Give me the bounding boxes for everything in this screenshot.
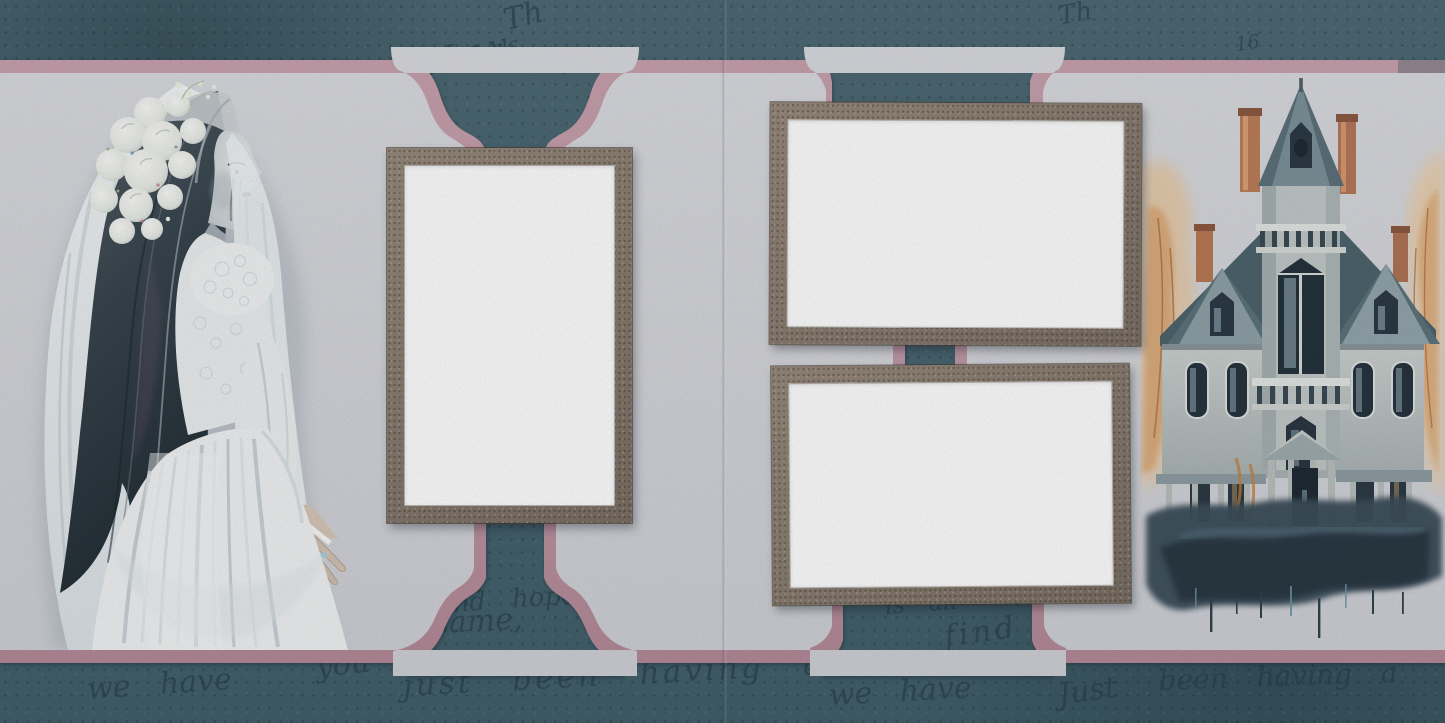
photo-placeholder-left[interactable] bbox=[404, 165, 615, 506]
decorative-script: we have bbox=[828, 671, 973, 713]
decorative-script: 18 bbox=[556, 45, 595, 81]
photo-frame-left bbox=[387, 148, 632, 523]
photo-frame-right-top bbox=[769, 102, 1141, 346]
decorative-script: Th bbox=[1056, 0, 1095, 32]
decorative-script: just been having a bbox=[402, 646, 825, 704]
decorative-script: we have bbox=[86, 662, 233, 707]
decorative-script: find bbox=[942, 610, 1020, 655]
decorative-script: May bbox=[418, 24, 518, 85]
photo-frame-right-bottom bbox=[771, 364, 1131, 606]
photo-placeholder-right-top[interactable] bbox=[787, 119, 1125, 328]
decorative-script: the same, bbox=[360, 602, 523, 645]
photo-placeholder-right-bottom[interactable] bbox=[788, 381, 1114, 589]
scrapbook-spread: Th 16 May 18 Th 16 and hope you the same… bbox=[0, 0, 1445, 723]
decorative-script: you bbox=[314, 644, 372, 684]
decorative-script: Just bbox=[1056, 670, 1119, 713]
decorative-script: 16 bbox=[1234, 31, 1261, 56]
decorative-script: been having a bbox=[1158, 656, 1398, 697]
teal-script-paper: Th 16 May 18 Th 16 and hope you the same… bbox=[0, 0, 1445, 723]
